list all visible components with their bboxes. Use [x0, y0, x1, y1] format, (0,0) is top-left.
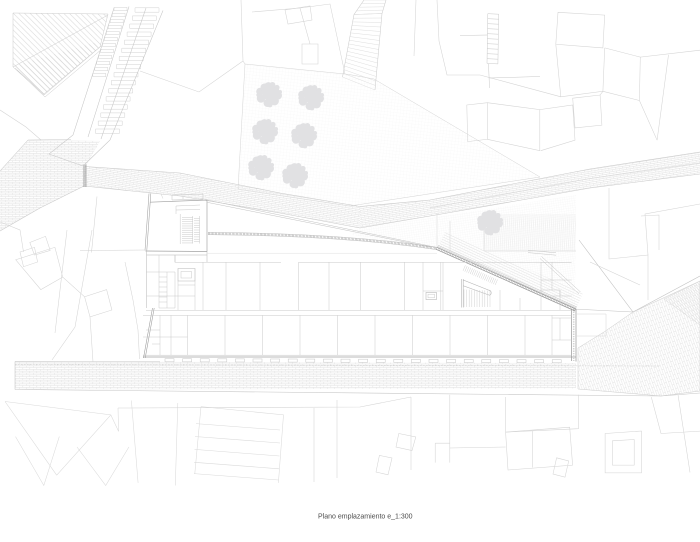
svg-text:Plano emplazamiento e_1:300: Plano emplazamiento e_1:300 [318, 514, 413, 521]
